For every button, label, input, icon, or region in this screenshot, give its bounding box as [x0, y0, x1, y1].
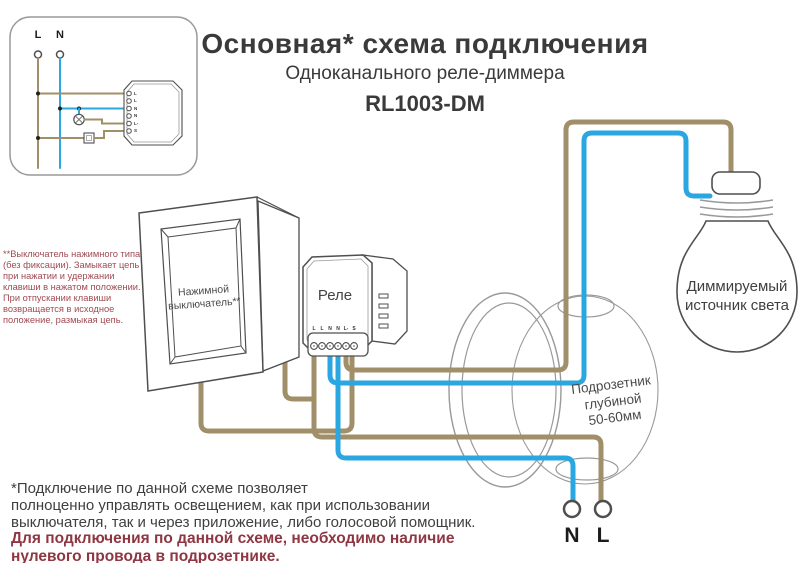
- model-number: RL1003-DM: [190, 91, 660, 117]
- inset-terminal-label-l2: L: [134, 98, 144, 103]
- inset-lamp-symbol: [74, 114, 84, 124]
- inset-terminal-label-lminus: L-: [134, 121, 144, 126]
- wire-phase-bus-to-mains-l: [314, 356, 601, 501]
- inset-terminal-label-n1: N: [134, 106, 144, 111]
- relay-terminal-label-s: S: [350, 326, 358, 332]
- relay-terminal-label-n2: N: [334, 326, 342, 332]
- inset-terminal-label-n2: N: [134, 113, 144, 118]
- relay-terminal-label-l2: L: [318, 326, 326, 332]
- relay-drawing: [303, 255, 407, 356]
- inset-l-terminal: [35, 51, 42, 58]
- inset-terminal-label-l1: L: [134, 91, 144, 96]
- switch-type-note: **Выключатель нажимного типа (без фиксац…: [3, 249, 143, 326]
- mounting-box-front-inner: [462, 303, 556, 477]
- bulb-cap: [712, 172, 760, 194]
- page-title: Основная* схема подключения: [190, 28, 660, 60]
- switch-side-box: [258, 201, 299, 371]
- warning-text: Для подключения по данной схеме, необход…: [11, 530, 491, 563]
- inset-terminal-label-s: S: [134, 128, 144, 133]
- mains-l-label: L: [591, 524, 615, 548]
- mains-l-terminal: [595, 501, 611, 517]
- mains-terminals: [564, 501, 611, 517]
- mains-n-terminal: [564, 501, 580, 517]
- wiring-diagram-page: Основная* схема подключения Одноканально…: [0, 0, 800, 563]
- inset-switch-symbol: [84, 133, 94, 143]
- inset-relay-symbol: [124, 81, 182, 145]
- inset-l-label: L: [31, 29, 45, 41]
- relay-terminal-label-n1: N: [326, 326, 334, 332]
- footnote-text: *Подключение по данной схеме позволяет п…: [11, 481, 491, 531]
- bulb-label: Диммируемый источник света: [677, 277, 797, 315]
- mounting-box-bottom-grommet: [556, 458, 618, 480]
- relay-terminal-label-lminus: L-: [342, 326, 350, 332]
- page-subtitle: Одноканального реле-диммера: [190, 63, 660, 85]
- relay-label: Реле: [305, 287, 365, 304]
- bulb-drawing: [677, 172, 797, 352]
- inset-n-label: N: [53, 29, 67, 41]
- inset-n-terminal: [57, 51, 64, 58]
- relay-terminal-label-l1: L: [310, 326, 318, 332]
- mains-n-label: N: [560, 524, 584, 548]
